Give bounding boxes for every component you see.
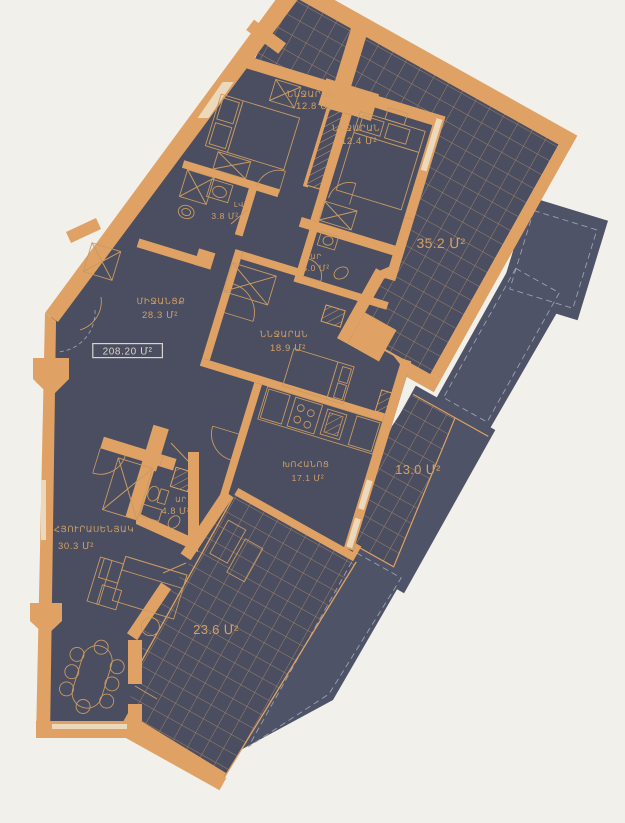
- svg-text:12.8 Մ²: 12.8 Մ²: [296, 101, 332, 112]
- svg-text:ՆՆՋԱՐԱՆ: ՆՆՋԱՐԱՆ: [332, 123, 380, 133]
- svg-text:208.20 Մ²: 208.20 Մ²: [103, 347, 153, 358]
- svg-text:13.0 Մ²: 13.0 Մ²: [395, 462, 441, 477]
- svg-text:ՀՅՈՒՐԱՍԵՆՅԱԿ: ՀՅՈՒՐԱՍԵՆՅԱԿ: [54, 524, 134, 534]
- svg-text:ԱՐ: ԱՐ: [310, 253, 321, 261]
- svg-text:18.9 Մ²: 18.9 Մ²: [270, 343, 306, 354]
- svg-text:ՆՆՋԱՐԱՆ: ՆՆՋԱՐԱՆ: [260, 329, 308, 339]
- svg-text:23.6 Մ²: 23.6 Մ²: [193, 622, 239, 637]
- svg-text:3.8 Մ²: 3.8 Մ²: [211, 211, 238, 221]
- svg-text:4.8 Մ²: 4.8 Մ²: [162, 506, 191, 516]
- svg-text:ՄԻՋԱՆՑՔ: ՄԻՋԱՆՑՔ: [137, 296, 186, 306]
- svg-text:35.2 Մ²: 35.2 Մ²: [417, 235, 466, 251]
- svg-text:12.4 Մ²: 12.4 Մ²: [341, 136, 377, 147]
- svg-text:3.0 Մ²: 3.0 Մ²: [302, 263, 329, 273]
- svg-text:28.3 Մ²: 28.3 Մ²: [142, 310, 178, 321]
- svg-text:ՆՆՋԱՐԱՆ: ՆՆՋԱՐԱՆ: [287, 89, 335, 99]
- svg-text:ԱՐ: ԱՐ: [175, 496, 186, 504]
- svg-text:ԼՎ: ԼՎ: [234, 201, 244, 209]
- svg-text:30.3 Մ²: 30.3 Մ²: [58, 541, 94, 552]
- svg-text:17.1 Մ²: 17.1 Մ²: [292, 473, 325, 483]
- svg-text:ԽՈՀԱՆՈՑ: ԽՈՀԱՆՈՑ: [283, 460, 330, 469]
